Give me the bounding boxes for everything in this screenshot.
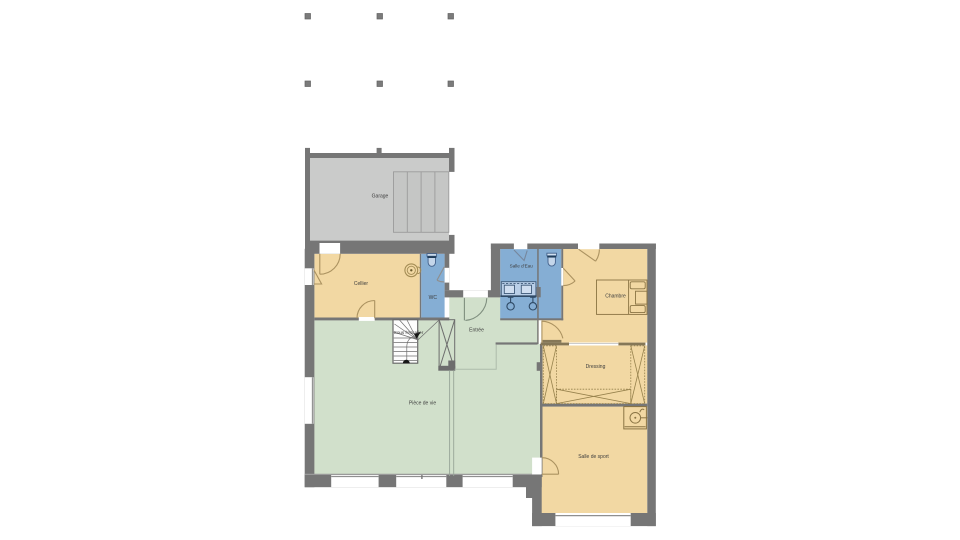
svg-text:Entrée: Entrée <box>469 328 484 334</box>
svg-text:Pièce de vie: Pièce de vie <box>409 400 436 406</box>
svg-text:Chambre: Chambre <box>605 294 626 300</box>
svg-text:WC: WC <box>429 295 438 301</box>
svg-text:Sous l'escalier: Sous l'escalier <box>394 330 424 335</box>
svg-text:Cellier: Cellier <box>354 281 369 287</box>
svg-text:Salle d'Eau: Salle d'Eau <box>510 264 534 269</box>
svg-text:Salle de sport: Salle de sport <box>578 454 609 460</box>
svg-text:Dressing: Dressing <box>586 364 606 370</box>
svg-text:Garage: Garage <box>372 194 389 200</box>
